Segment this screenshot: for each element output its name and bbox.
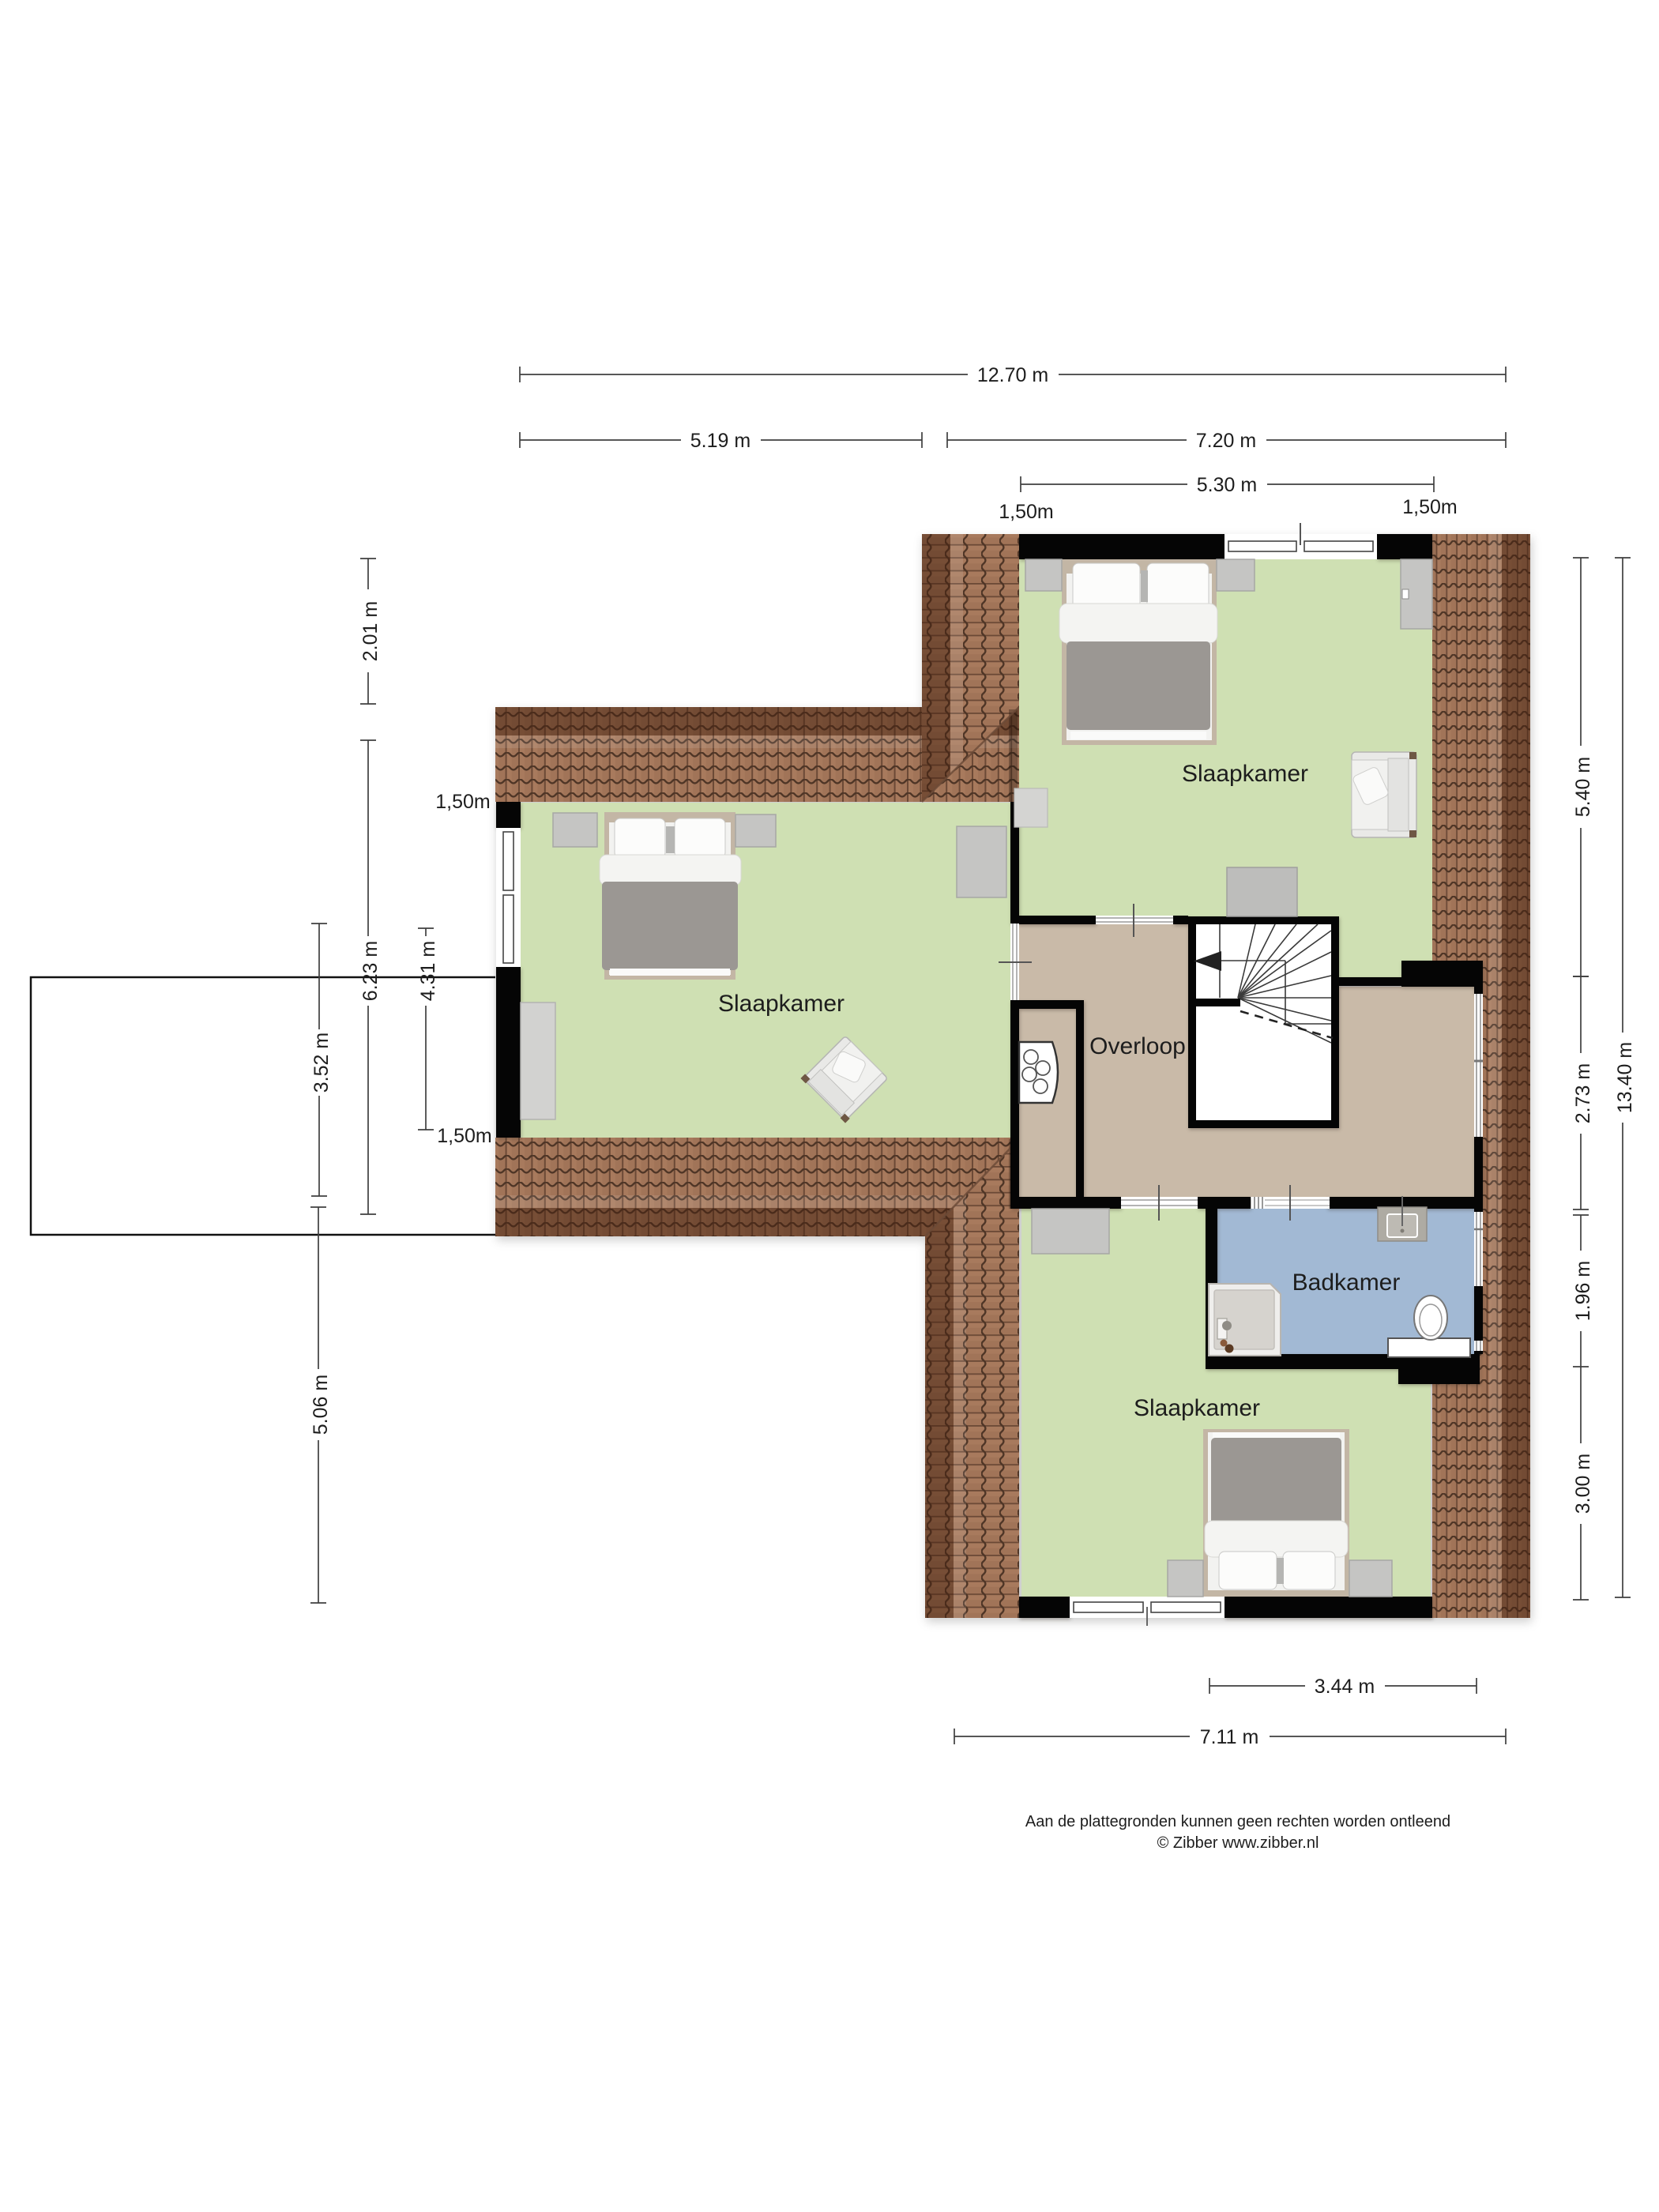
svg-text:1,50m: 1,50m [999, 501, 1053, 523]
svg-text:7.11 m: 7.11 m [1200, 1726, 1259, 1748]
svg-text:5.30 m: 5.30 m [1197, 474, 1257, 496]
svg-text:5.40 m: 5.40 m [1572, 757, 1594, 817]
svg-text:1,50m: 1,50m [437, 1125, 491, 1147]
svg-text:1,50m: 1,50m [1402, 496, 1457, 518]
svg-text:2.73 m: 2.73 m [1572, 1063, 1594, 1123]
svg-text:1.96 m: 1.96 m [1572, 1261, 1594, 1321]
svg-text:1,50m: 1,50m [435, 791, 490, 813]
svg-text:Slaapkamer: Slaapkamer [1134, 1395, 1260, 1421]
svg-text:Aan de plattegronden kunnen ge: Aan de plattegronden kunnen geen rechten… [1025, 1813, 1450, 1830]
svg-text:3.52 m: 3.52 m [310, 1033, 333, 1093]
svg-text:Slaapkamer: Slaapkamer [718, 991, 845, 1017]
svg-text:2.01 m: 2.01 m [359, 601, 382, 661]
svg-text:3.00 m: 3.00 m [1572, 1454, 1594, 1514]
svg-text:Badkamer: Badkamer [1292, 1270, 1401, 1296]
svg-text:Overloop: Overloop [1089, 1033, 1186, 1059]
svg-text:5.06 m: 5.06 m [310, 1375, 332, 1435]
svg-text:4.31 m: 4.31 m [417, 941, 439, 1001]
svg-text:12.70 m: 12.70 m [977, 364, 1048, 386]
svg-text:© Zibber www.zibber.nl: © Zibber www.zibber.nl [1157, 1834, 1319, 1852]
svg-text:3.44 m: 3.44 m [1315, 1676, 1375, 1698]
svg-text:6.23 m: 6.23 m [359, 941, 382, 1001]
svg-text:Slaapkamer: Slaapkamer [1182, 761, 1308, 787]
svg-text:13.40 m: 13.40 m [1614, 1042, 1636, 1113]
svg-text:5.19 m: 5.19 m [690, 430, 750, 452]
svg-text:7.20 m: 7.20 m [1196, 430, 1256, 452]
